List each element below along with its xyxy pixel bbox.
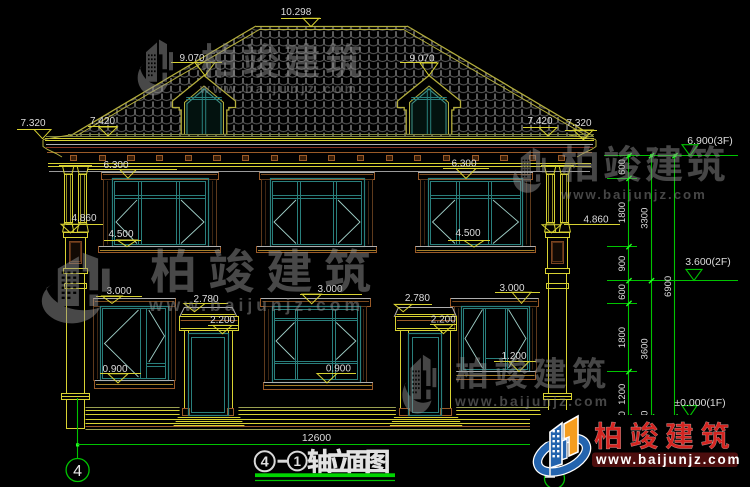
svg-text:2.780: 2.780 xyxy=(405,293,430,304)
svg-text:4.860: 4.860 xyxy=(583,215,608,226)
svg-text:www.baijunjz.com: www.baijunjz.com xyxy=(454,394,609,409)
svg-text:±0.000(1F): ±0.000(1F) xyxy=(674,397,725,409)
svg-text:9.070: 9.070 xyxy=(179,53,204,64)
svg-text:4.860: 4.860 xyxy=(71,213,96,224)
svg-text:www.baijunjz.com: www.baijunjz.com xyxy=(199,82,359,96)
svg-text:4: 4 xyxy=(73,463,82,480)
svg-text:1200: 1200 xyxy=(617,384,628,405)
svg-text:www.baijunjz.com: www.baijunjz.com xyxy=(595,452,741,467)
svg-text:1800: 1800 xyxy=(617,327,628,348)
svg-text:0.900: 0.900 xyxy=(326,364,351,375)
svg-text:4.500: 4.500 xyxy=(455,228,480,239)
svg-text:7.320: 7.320 xyxy=(20,118,45,129)
svg-text:www.baijunjz.com: www.baijunjz.com xyxy=(148,295,364,315)
svg-text:3.600(2F): 3.600(2F) xyxy=(685,256,731,268)
svg-text:3.000: 3.000 xyxy=(499,283,524,294)
svg-text:0.900: 0.900 xyxy=(102,364,127,375)
svg-text:www.baijunjz.com: www.baijunjz.com xyxy=(560,187,707,202)
svg-text:12600: 12600 xyxy=(302,432,331,444)
svg-text:4.500: 4.500 xyxy=(108,229,133,240)
svg-text:6900: 6900 xyxy=(663,276,674,297)
svg-text:6.300: 6.300 xyxy=(451,159,476,170)
svg-text:3.000: 3.000 xyxy=(106,286,131,297)
svg-text:7.420: 7.420 xyxy=(527,116,552,127)
svg-text:2.200: 2.200 xyxy=(431,315,456,326)
svg-text:9.070: 9.070 xyxy=(409,54,434,65)
svg-text:10.298: 10.298 xyxy=(281,7,312,18)
svg-text:7.420: 7.420 xyxy=(90,116,115,127)
svg-text:7.320: 7.320 xyxy=(566,118,591,129)
svg-text:3600: 3600 xyxy=(639,338,650,359)
svg-text:1: 1 xyxy=(294,454,302,469)
svg-text:6.300: 6.300 xyxy=(103,160,128,171)
svg-text:600: 600 xyxy=(617,284,628,300)
svg-text:900: 900 xyxy=(617,256,628,272)
svg-text:4: 4 xyxy=(261,455,269,471)
svg-text:3300: 3300 xyxy=(639,208,650,229)
svg-text:2.200: 2.200 xyxy=(210,315,235,326)
svg-text:1800: 1800 xyxy=(617,202,628,223)
